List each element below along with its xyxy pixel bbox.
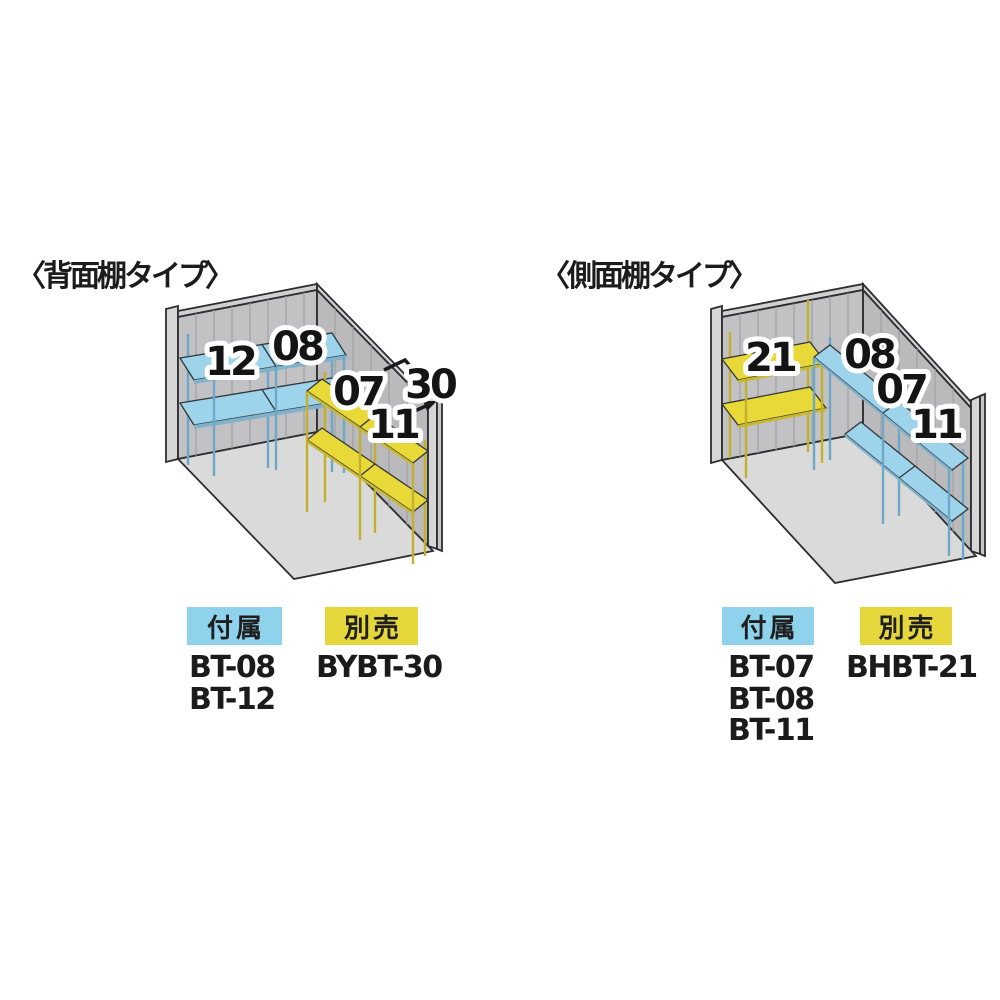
optional-badge: 別売 — [325, 607, 418, 645]
shelf-label: 12 — [205, 339, 255, 385]
right-diagram: 21 08 07 11 — [711, 284, 985, 583]
shelf-label: 08 — [272, 324, 323, 370]
included-product-codes: BT-07 BT-08 BT-11 — [728, 652, 814, 747]
left-end-cap — [711, 306, 722, 463]
product-code: BT-08 — [189, 652, 275, 684]
left-diagram: 12 08 07 11 30 — [166, 284, 456, 579]
right-end-cap-outer — [980, 394, 985, 556]
included-badge: 付属 — [187, 607, 282, 645]
left-end-cap — [166, 306, 178, 462]
shelf-label: 30 — [405, 362, 456, 408]
product-code: BHBT-21 — [846, 652, 977, 684]
product-code: BT-07 — [728, 652, 814, 684]
product-code: BT-12 — [189, 684, 275, 716]
shelf-label: 11 — [368, 402, 419, 448]
product-code: BT-08 — [728, 684, 814, 716]
right-end-cap — [428, 392, 437, 549]
optional-product-codes: BHBT-21 — [846, 652, 977, 684]
optional-badge: 別売 — [860, 607, 952, 645]
shelf-label: 21 — [745, 335, 796, 381]
right-diagram-title: 〈側面棚タイプ〉 — [540, 251, 756, 295]
included-product-codes: BT-08 BT-12 — [189, 652, 275, 715]
right-end-cap — [971, 396, 980, 554]
right-end-cap-outer — [437, 390, 442, 551]
shelf-diagrams-illustration: 12 08 07 11 30 — [0, 0, 1000, 1000]
product-code: BYBT-30 — [316, 652, 442, 684]
shelf-label: 11 — [911, 402, 962, 448]
optional-product-codes: BYBT-30 — [316, 652, 442, 684]
included-badge: 付属 — [722, 607, 814, 645]
page: 12 08 07 11 30 — [0, 0, 1000, 1000]
product-code: BT-11 — [728, 715, 814, 747]
left-diagram-title: 〈背面棚タイプ〉 — [16, 251, 232, 295]
